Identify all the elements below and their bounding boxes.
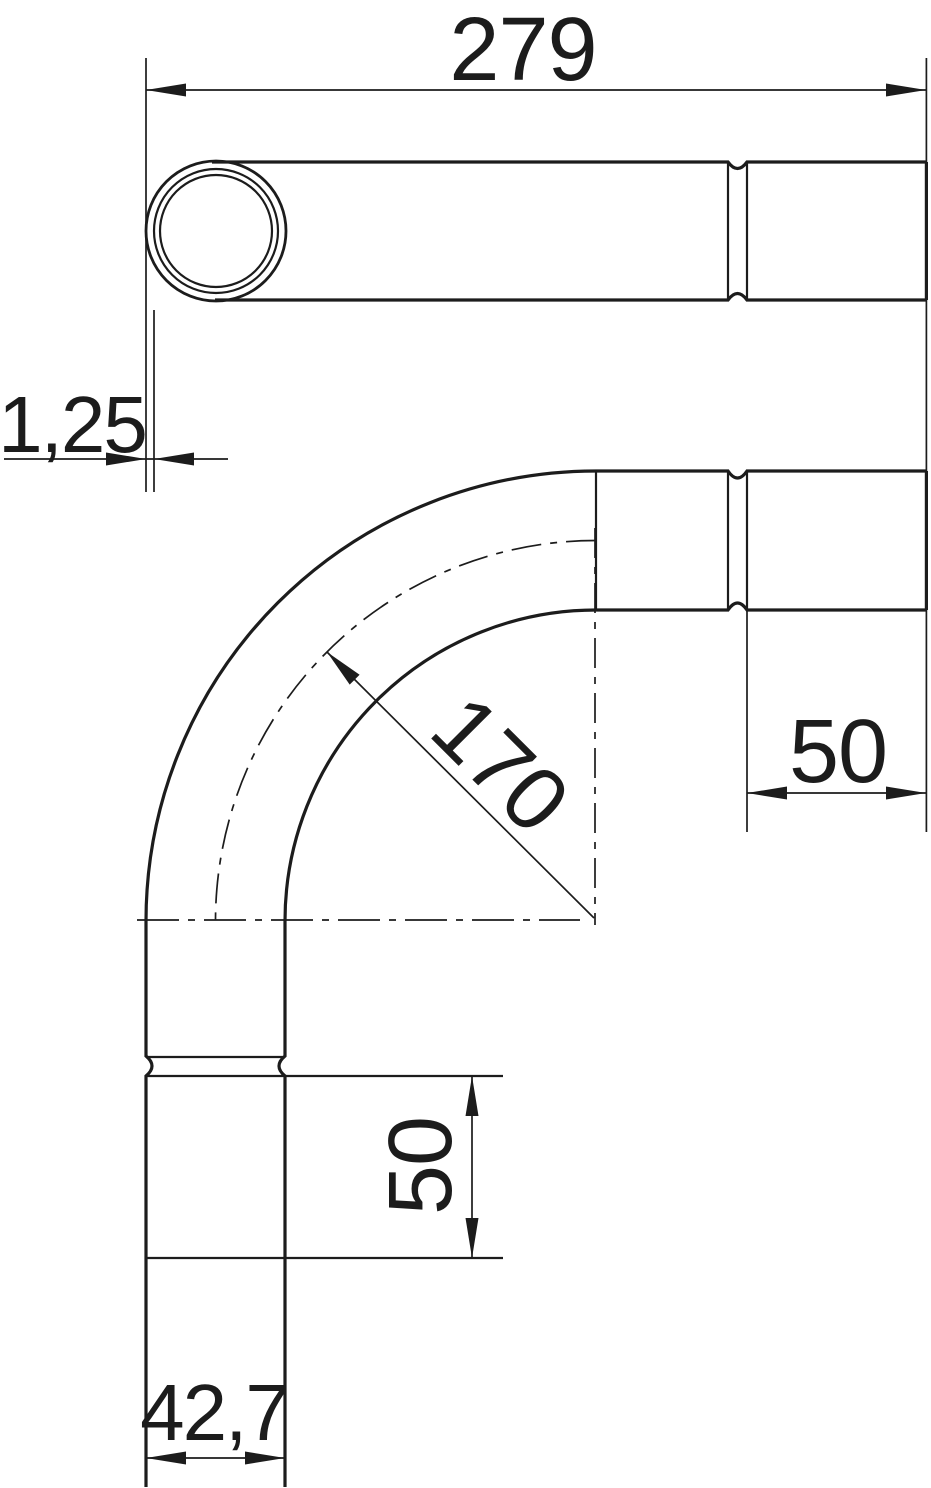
dim-wall-thickness-label: 1,25 — [0, 380, 146, 469]
bend-view — [137, 471, 926, 1487]
dim-socket-bottom-label: 50 — [371, 1117, 471, 1215]
dim-overall-length-arrow-right — [886, 84, 926, 97]
technical-drawing-page: 279 1,25 170 50 50 42,7 — [0, 0, 931, 1488]
dim-socket-right-arrow-left — [747, 787, 787, 800]
bend-outer-profile — [146, 471, 926, 1487]
pipe-bend-drawing: 279 1,25 170 50 50 42,7 — [0, 0, 931, 1488]
dim-socket-bottom-arrow-top — [466, 1076, 479, 1116]
dim-diameter-label: 42,7 — [140, 1368, 288, 1457]
dim-socket-right-arrow-right — [886, 787, 926, 800]
dim-socket-bottom-arrow-bottom — [466, 1218, 479, 1258]
end-view-bore-circle — [160, 175, 272, 287]
dim-socket-right-label: 50 — [789, 702, 887, 802]
pipe-bottom-edge — [215, 294, 926, 301]
dim-bend-radius-label: 170 — [412, 677, 587, 852]
dim-overall-length-arrow-left — [146, 84, 186, 97]
end-view-socket-circle — [154, 169, 278, 293]
dimensions: 279 1,25 170 50 50 42,7 — [0, 0, 926, 1465]
dim-wall-thickness-arrow-right — [154, 453, 194, 466]
pipe-top-edge — [212, 162, 926, 169]
top-view — [146, 161, 926, 301]
end-view-outer-circle — [146, 161, 286, 301]
dim-overall-length-label: 279 — [449, 0, 596, 100]
